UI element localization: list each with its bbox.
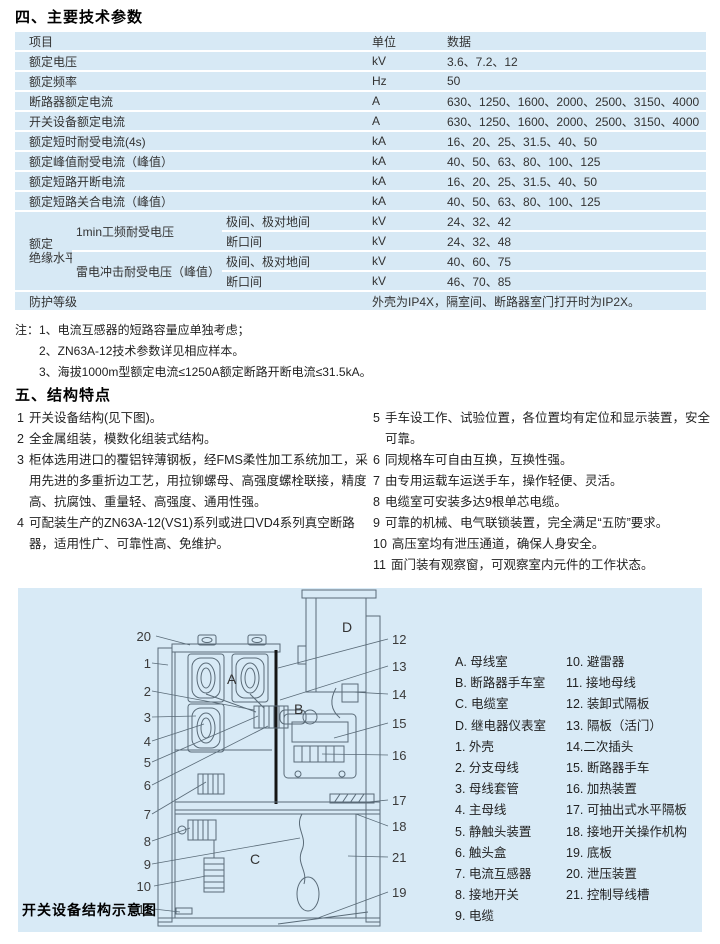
note-line: 2、ZN63A-12技术参数详见相应样本。 <box>39 341 372 362</box>
row-data: 16、20、25、31.5、40、50 <box>443 131 706 151</box>
row-data: 630、1250、1600、2000、2500、3150、4000 <box>443 91 706 111</box>
structure-diagram-panel: 20 1 2 3 4 5 6 7 8 9 10 11 12 13 14 15 1… <box>18 588 702 932</box>
diagram-caption: 开关设备结构示意图 <box>22 900 157 920</box>
legend-item: 1. 外壳 <box>455 737 565 758</box>
row-item: 断路器额定电流 <box>15 91 368 111</box>
table-header-row: 项目 单位 数据 <box>15 32 706 51</box>
feature-text: 手车设工作、试验位置，各位置均有定位和显示装置，安全可靠。 <box>385 408 715 450</box>
feature-text: 面门装有观察窗，可观察室内元件的工作状态。 <box>391 555 715 576</box>
feature-number: 9 <box>373 513 380 534</box>
cond-label: 极间、极对地间 <box>222 211 368 231</box>
diagram-label: 2 <box>144 684 151 699</box>
table-row: 额定频率 Hz 50 <box>15 71 706 91</box>
note-prefix: 注： <box>15 320 39 341</box>
feature-text: 同规格车可自由互换，互换性强。 <box>385 450 715 471</box>
diagram-label: 12 <box>392 632 406 647</box>
row-data: 16、20、25、31.5、40、50 <box>443 171 706 191</box>
diagram-label: 13 <box>392 659 406 674</box>
row-item: 额定峰值耐受电流（峰值） <box>15 151 368 171</box>
row-item: 额定短路关合电流（峰值） <box>15 191 368 211</box>
relay-instrument-box <box>298 590 376 692</box>
legend-item: 14.二次插头 <box>566 737 706 758</box>
compartment-d-label: D <box>342 619 352 635</box>
diagram-label: 21 <box>392 850 406 865</box>
table-row: 额定电压 kV 3.6、7.2、12 <box>15 51 706 71</box>
row-unit: kA <box>368 171 443 191</box>
feature-number: 10 <box>373 534 387 555</box>
legend-item: 6. 触头盒 <box>455 843 565 864</box>
diagram-label: 19 <box>392 885 406 900</box>
feature-text: 高压室均有泄压通道，确保人身安全。 <box>392 534 715 555</box>
feature-text: 柜体选用进口的覆铝锌薄钢板，经FMS柔性加工系统加工，采用先进的多重折边工艺，用… <box>29 450 369 513</box>
row-unit: A <box>368 111 443 131</box>
feature-number: 3 <box>17 450 24 513</box>
note-line: 注： 1、电流互感器的短路容量应单独考虑； <box>15 320 372 341</box>
catalog-page: 四、主要技术参数 项目 单位 数据 额定电压 kV 3.6、7.2、12 额定频… <box>0 0 720 944</box>
feature-text: 可靠的机械、电气联锁装置，完全满足“五防”要求。 <box>385 513 715 534</box>
legend-item: 16. 加热装置 <box>566 779 706 800</box>
tech-params-table: 项目 单位 数据 额定电压 kV 3.6、7.2、12 额定频率 Hz 50 断… <box>15 32 706 312</box>
feature-number: 7 <box>373 471 380 492</box>
col-header-data: 数据 <box>443 32 706 51</box>
diagram-label: 17 <box>392 793 406 808</box>
row-unit: kA <box>368 191 443 211</box>
table-row: 额定短时耐受电流(4s) kA 16、20、25、31.5、40、50 <box>15 131 706 151</box>
feature-item: 9 可靠的机械、电气联锁装置，完全满足“五防”要求。 <box>373 513 715 534</box>
compartment-a-label: A <box>227 671 237 687</box>
feature-item: 5 手车设工作、试验位置，各位置均有定位和显示装置，安全可靠。 <box>373 408 715 450</box>
feature-number: 8 <box>373 492 380 513</box>
legend-item: 11. 接地母线 <box>566 673 706 694</box>
insulation-group-label: 额定 绝缘水平 <box>15 211 72 291</box>
legend-item: C. 电缆室 <box>455 694 565 715</box>
row-item: 额定短路开断电流 <box>15 171 368 191</box>
diagram-label: 15 <box>392 716 406 731</box>
row-unit: Hz <box>368 71 443 91</box>
right-number-labels: 12 13 14 15 16 17 18 21 19 <box>392 632 406 900</box>
diagram-label: 4 <box>144 734 151 749</box>
table-row: 额定短路开断电流 kA 16、20、25、31.5、40、50 <box>15 171 706 191</box>
left-number-labels: 20 1 2 3 4 5 6 7 8 9 10 11 <box>137 629 151 917</box>
row-unit: kV <box>368 271 443 291</box>
diagram-label: 9 <box>144 857 151 872</box>
diagram-legend-column1: A. 母线室 B. 断路器手车室 C. 电缆室 D. 继电器仪表室 1. 外壳 … <box>455 652 565 928</box>
cond-label: 断口间 <box>222 231 368 251</box>
feature-item: 2 全金属组装，模数化组装式结构。 <box>17 429 369 450</box>
feature-item: 6 同规格车可自由互换，互换性强。 <box>373 450 715 471</box>
table-row: 断路器额定电流 A 630、1250、1600、2000、2500、3150、4… <box>15 91 706 111</box>
diagram-label: 16 <box>392 748 406 763</box>
legend-item: 4. 主母线 <box>455 800 565 821</box>
features-right-column: 5 手车设工作、试验位置，各位置均有定位和显示装置，安全可靠。 6 同规格车可自… <box>373 408 715 576</box>
compartment-letters: A B C D <box>227 619 352 867</box>
feature-item: 8 电缆室可安装多达9根单芯电缆。 <box>373 492 715 513</box>
row-unit: kV <box>368 211 443 231</box>
leader-lines <box>152 636 388 918</box>
note-text: 1、电流互感器的短路容量应单独考虑； <box>39 320 250 341</box>
legend-item: 9. 电缆 <box>455 906 565 927</box>
group-line1: 额定 <box>29 237 72 251</box>
feature-number: 2 <box>17 429 24 450</box>
feature-text: 可配装生产的ZN63A-12(VS1)系列或进口VD4系列真空断路器，适用性广、… <box>29 513 369 555</box>
breaker-truck <box>284 684 358 778</box>
row-data: 630、1250、1600、2000、2500、3150、4000 <box>443 111 706 131</box>
legend-item: 19. 底板 <box>566 843 706 864</box>
row-data: 46、70、85 <box>443 271 706 291</box>
feature-item: 7 由专用运载车运送手车，操作轻便、灵活。 <box>373 471 715 492</box>
feature-number: 6 <box>373 450 380 471</box>
insulation-row: 额定 绝缘水平 1min工频耐受电压 极间、极对地间 kV 24、32、42 <box>15 211 706 231</box>
row-unit: kA <box>368 151 443 171</box>
protection-row: 防护等级 外壳为IP4X，隔室间、断路器室门打开时为IP2X。 <box>15 291 706 311</box>
busbar-bushings <box>188 654 268 752</box>
switchgear-cross-section-diagram: 20 1 2 3 4 5 6 7 8 9 10 11 12 13 14 15 1… <box>18 588 458 932</box>
legend-item: 10. 避雷器 <box>566 652 706 673</box>
section4-title: 四、主要技术参数 <box>15 6 143 27</box>
feature-number: 5 <box>373 408 380 450</box>
col-header-unit: 单位 <box>368 32 443 51</box>
legend-item: A. 母线室 <box>455 652 565 673</box>
diagram-legend-column2: 10. 避雷器 11. 接地母线 12. 装卸式隔板 13. 隔板（活门） 14… <box>566 652 706 906</box>
diagram-label: 6 <box>144 778 151 793</box>
legend-item: 3. 母线套管 <box>455 779 565 800</box>
diagram-label: 1 <box>144 656 151 671</box>
legend-item: 2. 分支母线 <box>455 758 565 779</box>
diagram-label: 8 <box>144 834 151 849</box>
row-unit: kV <box>368 231 443 251</box>
legend-item: D. 继电器仪表室 <box>455 716 565 737</box>
row-data: 40、50、63、80、100、125 <box>443 151 706 171</box>
row-data: 3.6、7.2、12 <box>443 51 706 71</box>
cond-label: 断口间 <box>222 271 368 291</box>
diagram-label: 20 <box>137 629 151 644</box>
row-data: 24、32、48 <box>443 231 706 251</box>
group-line2: 绝缘水平 <box>29 251 72 265</box>
impulse-label: 雷电冲击耐受电压（峰值） <box>72 251 222 291</box>
legend-item: 17. 可抽出式水平隔板 <box>566 800 706 821</box>
diagram-label: 7 <box>144 807 151 822</box>
row-data: 24、32、42 <box>443 211 706 231</box>
legend-item: 20. 泄压装置 <box>566 864 706 885</box>
section5-title: 五、结构特点 <box>15 384 111 405</box>
protection-data: 外壳为IP4X，隔室间、断路器室门打开时为IP2X。 <box>368 291 706 311</box>
legend-item: 12. 装卸式隔板 <box>566 694 706 715</box>
legend-item: 13. 隔板（活门） <box>566 716 706 737</box>
row-item: 额定电压 <box>15 51 368 71</box>
feature-text: 全金属组装，模数化组装式结构。 <box>29 429 369 450</box>
note-line: 3、海拔1000m型额定电流≤1250A额定断路开断电流≤31.5kA。 <box>39 362 372 383</box>
feature-text: 电缆室可安装多达9根单芯电缆。 <box>385 492 715 513</box>
feature-item: 3 柜体选用进口的覆铝锌薄钢板，经FMS柔性加工系统加工，采用先进的多重折边工艺… <box>17 450 369 513</box>
diagram-label: 14 <box>392 687 406 702</box>
feature-number: 11 <box>373 555 386 576</box>
insulation-row: 雷电冲击耐受电压（峰值） 极间、极对地间 kV 40、60、75 <box>15 251 706 271</box>
diagram-label: 3 <box>144 710 151 725</box>
cabinet-outline <box>158 616 380 926</box>
row-unit: kV <box>368 51 443 71</box>
feature-text: 开关设备结构(见下图)。 <box>29 408 369 429</box>
col-header-item: 项目 <box>15 32 368 51</box>
diagram-label: 10 <box>137 879 151 894</box>
row-data: 50 <box>443 71 706 91</box>
protection-item: 防护等级 <box>15 291 368 311</box>
table-row: 开关设备额定电流 A 630、1250、1600、2000、2500、3150、… <box>15 111 706 131</box>
row-item: 开关设备额定电流 <box>15 111 368 131</box>
table-row: 额定峰值耐受电流（峰值） kA 40、50、63、80、100、125 <box>15 151 706 171</box>
row-data: 40、60、75 <box>443 251 706 271</box>
legend-item: 7. 电流互感器 <box>455 864 565 885</box>
legend-item: 8. 接地开关 <box>455 885 565 906</box>
legend-item: 15. 断路器手车 <box>566 758 706 779</box>
feature-item: 4 可配装生产的ZN63A-12(VS1)系列或进口VD4系列真空断路器，适用性… <box>17 513 369 555</box>
table-row: 额定短路关合电流（峰值） kA 40、50、63、80、100、125 <box>15 191 706 211</box>
legend-item: 18. 接地开关操作机构 <box>566 822 706 843</box>
row-item: 额定短时耐受电流(4s) <box>15 131 368 151</box>
row-data: 40、50、63、80、100、125 <box>443 191 706 211</box>
table-notes: 注： 1、电流互感器的短路容量应单独考虑； 2、ZN63A-12技术参数详见相应… <box>15 320 372 383</box>
diagram-label: 5 <box>144 755 151 770</box>
legend-item: 5. 静触头装置 <box>455 822 565 843</box>
legend-item: 21. 控制导线槽 <box>566 885 706 906</box>
feature-number: 1 <box>17 408 24 429</box>
feature-number: 4 <box>17 513 24 555</box>
row-unit: A <box>368 91 443 111</box>
row-item: 额定频率 <box>15 71 368 91</box>
power-freq-label: 1min工频耐受电压 <box>72 211 222 251</box>
feature-item: 10 高压室均有泄压通道，确保人身安全。 <box>373 534 715 555</box>
row-unit: kA <box>368 131 443 151</box>
features-left-column: 1 开关设备结构(见下图)。 2 全金属组装，模数化组装式结构。 3 柜体选用进… <box>17 408 369 555</box>
compartment-b-label: B <box>294 701 303 717</box>
cable-compartment-internals <box>176 774 356 918</box>
feature-item: 1 开关设备结构(见下图)。 <box>17 408 369 429</box>
feature-text: 由专用运载车运送手车，操作轻便、灵活。 <box>385 471 715 492</box>
diagram-label: 18 <box>392 819 406 834</box>
compartment-c-label: C <box>250 851 260 867</box>
cond-label: 极间、极对地间 <box>222 251 368 271</box>
legend-item: B. 断路器手车室 <box>455 673 565 694</box>
feature-item: 11 面门装有观察窗，可观察室内元件的工作状态。 <box>373 555 715 576</box>
contact-box-assembly <box>254 706 317 728</box>
row-unit: kV <box>368 251 443 271</box>
